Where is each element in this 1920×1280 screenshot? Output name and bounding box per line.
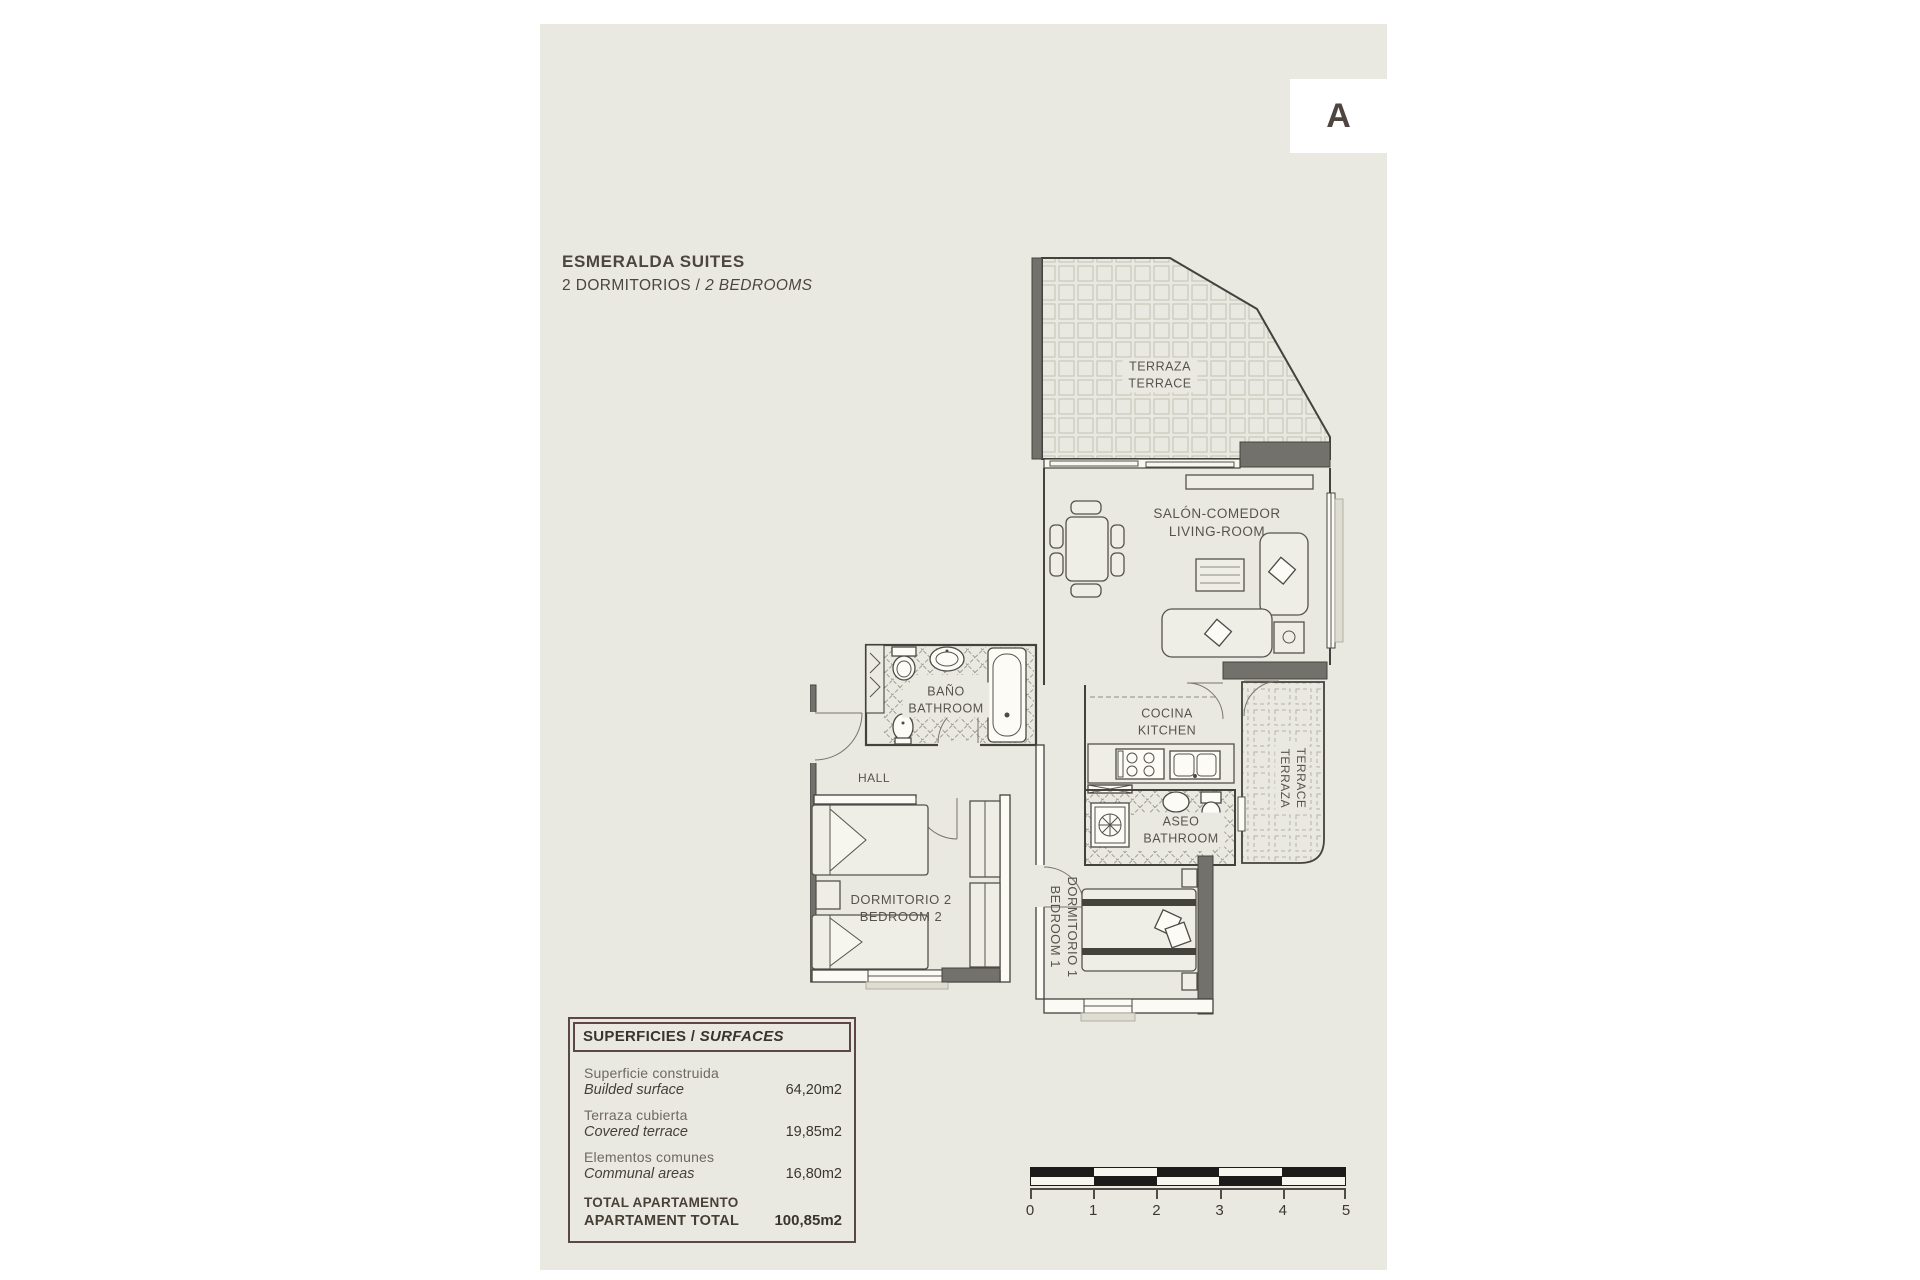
- total-label-en: APARTAMENT TOTAL: [584, 1213, 739, 1229]
- scale-tick: [1220, 1190, 1222, 1199]
- label-bathroom-en: BATHROOM: [908, 700, 983, 717]
- unit-badge: A: [1290, 79, 1387, 153]
- label-hall: HALL: [858, 771, 890, 787]
- label-living-room: SALÓN-COMEDOR LIVING-ROOM: [1153, 505, 1280, 541]
- label-bathroom-es: BAÑO: [908, 684, 983, 701]
- coffee-table: [1196, 559, 1244, 591]
- surfaces-table-body: Superficie construida Builded surface 64…: [570, 1055, 854, 1241]
- label-aseo-en: BATHROOM: [1143, 830, 1218, 847]
- row-label-es: Superficie construida: [584, 1065, 842, 1081]
- label-bedroom1-es: DORMITORIO 1: [1064, 876, 1081, 977]
- label-bedroom1: DORMITORIO 1 BEDROOM 1: [1046, 870, 1082, 983]
- label-terrace-top-es: TERRAZA: [1128, 359, 1191, 376]
- nightstand: [1182, 973, 1197, 990]
- label-terrace-side-es: TERRAZA: [1276, 748, 1292, 809]
- living-room: [1044, 468, 1343, 685]
- subtitle-es: 2 DORMITORIOS: [562, 277, 691, 294]
- toilet: [892, 647, 916, 680]
- row-value: 16,80m2: [786, 1166, 842, 1182]
- scale-tick: [1283, 1190, 1285, 1199]
- project-title: ESMERALDA SUITES: [562, 252, 812, 272]
- unit-letter: A: [1326, 97, 1351, 136]
- vent-shaft: [866, 645, 884, 713]
- row-label-es: Elementos comunes: [584, 1149, 842, 1165]
- label-kitchen-es: COCINA: [1138, 706, 1196, 723]
- bathroom-sink: [930, 647, 964, 671]
- scale-number: 3: [1215, 1202, 1223, 1219]
- side-cabinet: [1274, 622, 1304, 653]
- scale-number: 1: [1089, 1202, 1097, 1219]
- row-label-en: Covered terrace: [584, 1124, 688, 1140]
- label-bedroom2-es: DORMITORIO 2: [850, 891, 951, 908]
- label-terrace-side: TERRAZA TERRACE: [1275, 742, 1309, 815]
- bathtub: [988, 648, 1026, 742]
- total-value: 100,85m2: [774, 1212, 842, 1229]
- label-bathroom: BAÑO BATHROOM: [902, 683, 989, 718]
- label-bedroom2: DORMITORIO 2 BEDROOM 2: [850, 891, 951, 925]
- row-label-es: Terraza cubierta: [584, 1107, 842, 1123]
- scale-number: 2: [1152, 1202, 1160, 1219]
- scale-bar-numbers: 0 1 2 3 4 5: [1030, 1202, 1346, 1222]
- scale-number: 4: [1279, 1202, 1287, 1219]
- surfaces-table-header: SUPERFICIES / SURFACES: [573, 1022, 851, 1052]
- subtitle-separator: /: [691, 277, 705, 294]
- row-value: 19,85m2: [786, 1124, 842, 1140]
- scale-tick: [1030, 1190, 1032, 1199]
- kitchen-sink: [1170, 751, 1220, 779]
- scale-number: 5: [1342, 1202, 1350, 1219]
- table-row: Superficie construida Builded surface 64…: [584, 1065, 842, 1098]
- label-bedroom2-en: BEDROOM 2: [850, 908, 951, 925]
- label-kitchen-en: KITCHEN: [1138, 722, 1196, 739]
- header-separator: /: [686, 1028, 699, 1045]
- header-en: SURFACES: [700, 1028, 784, 1045]
- label-terrace-side-en: TERRACE: [1292, 748, 1308, 809]
- label-living-en: LIVING-ROOM: [1153, 523, 1280, 541]
- label-aseo-es: ASEO: [1143, 814, 1218, 831]
- aseo-sink: [1163, 792, 1189, 812]
- scale-bar-ticks: [1030, 1188, 1346, 1199]
- row-value: 64,20m2: [786, 1082, 842, 1098]
- single-bed-top: [812, 805, 928, 875]
- label-hall-text: HALL: [858, 771, 890, 787]
- label-kitchen: COCINA KITCHEN: [1138, 706, 1196, 739]
- label-bedroom1-en: BEDROOM 1: [1047, 876, 1064, 977]
- row-label-en: Communal areas: [584, 1166, 694, 1182]
- scale-number: 0: [1026, 1202, 1034, 1219]
- double-bed: [1082, 889, 1196, 971]
- row-label-en: Builded surface: [584, 1082, 684, 1098]
- subtitle-en: 2 BEDROOMS: [705, 277, 812, 294]
- label-terrace-top: TERRAZA TERRACE: [1122, 358, 1197, 393]
- table-row: Elementos comunes Communal areas 16,80m2: [584, 1149, 842, 1182]
- scale-tick: [1093, 1190, 1095, 1199]
- surfaces-table: SUPERFICIES / SURFACES Superficie constr…: [568, 1017, 856, 1243]
- title-block: ESMERALDA SUITES 2 DORMITORIOS / 2 BEDRO…: [562, 252, 812, 295]
- nightstand: [1182, 869, 1197, 887]
- table-row: Terraza cubierta Covered terrace 19,85m2: [584, 1107, 842, 1140]
- tv-cabinet: [1186, 475, 1313, 489]
- bidet: [893, 714, 913, 744]
- scale-bar-segments: [1030, 1167, 1346, 1186]
- table-total-row: TOTAL APARTAMENTO APARTAMENT TOTAL 100,8…: [584, 1195, 842, 1229]
- dining-table: [1050, 501, 1124, 597]
- label-terrace-top-en: TERRACE: [1128, 375, 1191, 392]
- scale-tick: [1344, 1190, 1346, 1199]
- washing-machine-icon: [1091, 803, 1129, 847]
- nightstand: [816, 881, 840, 909]
- total-label-es: TOTAL APARTAMENTO: [584, 1195, 842, 1210]
- entry-door-arc: [815, 713, 862, 760]
- label-living-es: SALÓN-COMEDOR: [1153, 505, 1280, 523]
- screenshot-canvas: A ESMERALDA SUITES 2 DORMITORIOS / 2 BED…: [0, 0, 1920, 1280]
- label-aseo: ASEO BATHROOM: [1137, 813, 1224, 848]
- scale-tick: [1156, 1190, 1158, 1199]
- wardrobes: [970, 801, 1000, 967]
- stove: [1116, 749, 1164, 779]
- scale-bar: 0 1 2 3 4 5: [1030, 1167, 1346, 1222]
- project-subtitle: 2 DORMITORIOS / 2 BEDROOMS: [562, 277, 812, 295]
- header-es: SUPERFICIES: [583, 1028, 686, 1045]
